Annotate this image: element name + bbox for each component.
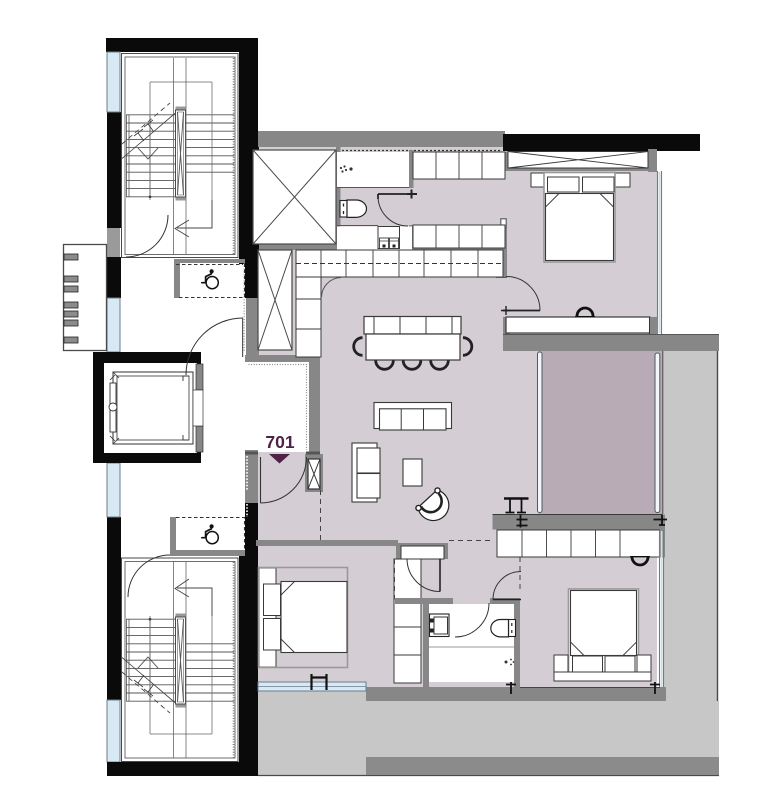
svg-text:701: 701 <box>265 432 294 452</box>
